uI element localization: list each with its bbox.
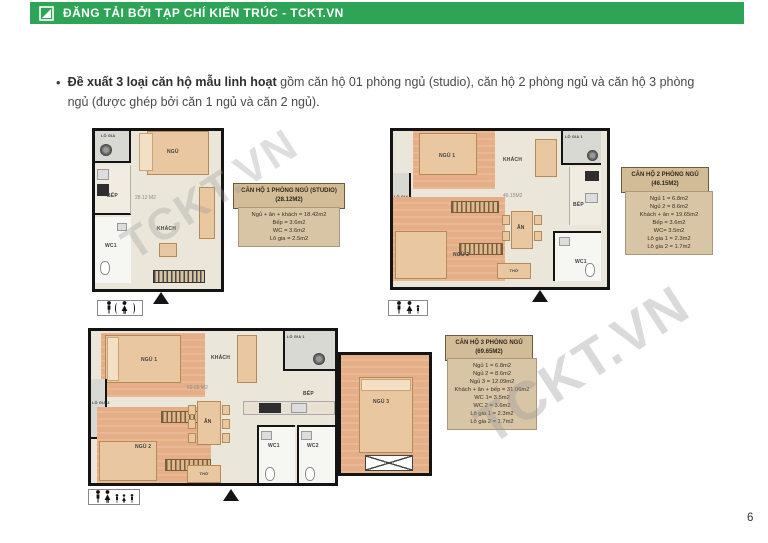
chair-shape [188, 419, 196, 429]
info-title-line: (28.12M2) [236, 196, 342, 205]
sofa-shape [535, 139, 557, 177]
info-line: Bếp = 3.6m2 [628, 219, 710, 227]
info-box-title-studio: CĂN HỘ 1 PHÒNG NGỦ (STUDIO) (28.12M2) [233, 183, 345, 209]
room-label-wc1: WC1 [268, 443, 280, 449]
info-title-line: CĂN HỘ 3 PHÒNG NGỦ [448, 339, 530, 348]
info-box-title-2br: CĂN HỘ 2 PHÒNG NGỦ (46.15M2) [621, 167, 709, 193]
wc-sink-icon [301, 431, 312, 440]
child-icon [415, 305, 421, 314]
info-line: WC= 3.5m2 [628, 227, 710, 235]
area-label: 69.65 M2 [187, 385, 208, 391]
person-icon [120, 301, 129, 314]
room-label-wc1: WC1 [105, 243, 117, 249]
washing-machine-icon [100, 144, 112, 156]
area-label: 28.12 M2 [135, 195, 156, 201]
info-line: Lô gia = 2.5m2 [241, 235, 337, 243]
chair-shape [159, 243, 177, 257]
room-label-wc1: WC1 [575, 259, 587, 265]
info-line: Lô gia 2 = 1.7m2 [628, 243, 710, 251]
bullet-marker: • [56, 73, 61, 112]
info-box-body-studio: Ngủ + ăn + khách = 18.42m2 Bếp = 3.6m2 W… [238, 207, 340, 247]
washing-machine-icon [587, 150, 598, 161]
entrance-triangle-icon [223, 489, 239, 501]
chair-shape [534, 231, 542, 241]
washing-machine-icon [313, 353, 325, 365]
info-box-body-3br: Ngủ 1 = 6.8m2 Ngủ 2 = 8.6m2 Ngủ 3 = 12.0… [447, 358, 537, 430]
room-label-ngu2: NGỦ 2 [453, 252, 469, 258]
chair-shape [534, 215, 542, 225]
shaft-cross-icon [365, 455, 413, 471]
stove-icon [259, 403, 281, 413]
chair-shape [188, 405, 196, 415]
area-label: 46.15M2 [503, 193, 522, 199]
room-label-ngu1: NGỦ 1 [439, 153, 455, 159]
page-number: 6 [747, 512, 753, 524]
toilet-icon [265, 467, 275, 481]
room-label-bep: BẾP [573, 202, 584, 208]
room-label-logia: LÔ GIA [101, 134, 115, 138]
room-label-an: ĂN [517, 225, 525, 231]
info-line: Khách + ăn + bếp = 31.06m2 [450, 386, 534, 394]
person-icon [405, 301, 414, 314]
info-line: WC = 3.6m2 [241, 227, 337, 235]
intro-lead: Đề xuất 3 loại căn hộ mẫu linh hoạt [68, 75, 277, 89]
intro-text: Đề xuất 3 loại căn hộ mẫu linh hoạt gồm … [68, 73, 716, 112]
kitchen-sink-icon [585, 193, 598, 203]
info-line: Ngủ + ăn + khách = 18.42m2 [241, 211, 337, 219]
pillow-shape [361, 379, 411, 391]
room-label-tho: THỜ [200, 472, 209, 476]
kitchen-sink-icon [97, 169, 109, 180]
tckt-logo-icon [39, 6, 54, 21]
room-label-ngu1: NGỦ 1 [141, 357, 157, 363]
info-title-line: CĂN HỘ 1 PHÒNG NGỦ (STUDIO) [236, 187, 342, 196]
info-title-line: (46.15M2) [624, 180, 706, 189]
wardrobe-shape [451, 201, 499, 213]
paren-right-icon [131, 303, 135, 314]
child-icon [129, 494, 135, 503]
floor-plan-2br: NGỦ 1 KHÁCH LÔ GIA 1 BẾP LÔ GIA 2 NGỦ 2 … [390, 128, 610, 290]
chair-shape [222, 433, 230, 443]
info-line: Bếp = 3.6m2 [241, 219, 337, 227]
sofa-shape [237, 335, 257, 383]
person-icon [105, 301, 113, 314]
room-label-ngu3: NGỦ 3 [373, 399, 389, 405]
info-title-line: CĂN HỘ 2 PHÒNG NGỦ [624, 171, 706, 180]
person-icon [395, 301, 403, 314]
header-bar: ĐĂNG TẢI BỞI TẠP CHÍ KIẾN TRÚC - TCKT.VN [30, 2, 744, 24]
info-line: WC 2 = 3.6m2 [450, 402, 534, 410]
paren-left-icon [115, 303, 119, 314]
occupancy-icon-studio [97, 300, 143, 316]
room-label-logia1: LÔ GIA 1 [287, 335, 305, 339]
info-title-line: (69.65M2) [448, 348, 530, 357]
occupancy-icon-3br [88, 489, 140, 505]
room-label-logia1: LÔ GIA 1 [565, 135, 583, 139]
info-line: Lô gia 2 = 1.7m2 [450, 418, 534, 426]
info-line: Ngủ 1 = 6.8m2 [450, 362, 534, 370]
bed-shape [395, 231, 447, 279]
room-label-bep: BẾP [303, 391, 314, 397]
occupancy-icon-2br [388, 300, 428, 316]
entrance-triangle-icon [532, 290, 548, 302]
chair-shape [222, 419, 230, 429]
entrance-triangle-icon [153, 292, 169, 304]
sofa-shape [199, 187, 215, 239]
room-label-khach: KHÁCH [157, 226, 176, 232]
info-line: Lô gia 1 = 2.3m2 [628, 235, 710, 243]
child-icon [114, 494, 120, 503]
room-label-wc2: WC2 [307, 443, 319, 449]
chair-shape [502, 231, 510, 241]
kitchen-sink-icon [291, 403, 307, 413]
room-label-logia2: LÔ GIA 2 [92, 401, 110, 405]
floor-plan-studio: LÔ GIA NGỦ BẾP WC1 KHÁCH 28.12 M2 [92, 128, 224, 292]
child-icon [121, 494, 127, 503]
plan3-bedroom3-wing: NGỦ 3 [338, 352, 432, 476]
document-page: ĐĂNG TẢI BỞI TẠP CHÍ KIẾN TRÚC - TCKT.VN… [0, 0, 768, 543]
toilet-icon [585, 263, 595, 277]
toilet-icon [305, 467, 315, 481]
room-label-ngu2: NGỦ 2 [135, 444, 151, 450]
room-tho: THỜ [187, 465, 221, 483]
wc-sink-icon [117, 223, 127, 231]
info-line: Ngủ 3 = 12.09m2 [450, 378, 534, 386]
chair-shape [188, 433, 196, 443]
floor-plan-3br: NGỦ 1 KHÁCH LÔ GIA 1 LÔ GIA 2 NGỦ 2 69.6… [88, 320, 432, 492]
doormat-shape [153, 270, 205, 283]
chair-shape [502, 215, 510, 225]
info-line: Lô gia 1 = 2.3m2 [450, 410, 534, 418]
info-box-body-2br: Ngủ 1 = 6.8m2 Ngủ 2 = 8.6m2 Khách + ăn =… [625, 191, 713, 255]
wc-sink-icon [559, 237, 570, 246]
chair-shape [222, 405, 230, 415]
room-label-khach: KHÁCH [211, 355, 230, 361]
person-icon [103, 490, 112, 503]
room-label-tho: THỜ [510, 269, 519, 273]
info-line: Ngủ 2 = 8.6m2 [628, 203, 710, 211]
info-line: WC 1= 3.5m2 [450, 394, 534, 402]
pillow-shape [107, 337, 119, 381]
plan3-main-body: NGỦ 1 KHÁCH LÔ GIA 1 LÔ GIA 2 NGỦ 2 69.6… [88, 328, 338, 486]
wc-sink-icon [261, 431, 272, 440]
toilet-icon [100, 261, 110, 275]
room-label-bep: BẾP [107, 193, 118, 199]
room-label-ngu: NGỦ [167, 149, 179, 155]
info-line: Ngủ 2 = 8.6m2 [450, 370, 534, 378]
pillow-shape [139, 133, 153, 171]
room-tho: THỜ [497, 263, 531, 279]
person-icon [94, 490, 102, 503]
intro-paragraph: • Đề xuất 3 loại căn hộ mẫu linh hoạt gồ… [56, 73, 716, 112]
stove-icon [585, 171, 599, 181]
info-line: Khách + ăn = 19.65m2 [628, 211, 710, 219]
info-line: Ngủ 1 = 6.8m2 [628, 195, 710, 203]
kitchen-counter-shape [243, 401, 335, 415]
room-label-an: ĂN [204, 419, 212, 425]
room-label-khach: KHÁCH [503, 157, 522, 163]
header-title: ĐĂNG TẢI BỞI TẠP CHÍ KIẾN TRÚC - TCKT.VN [63, 6, 344, 20]
